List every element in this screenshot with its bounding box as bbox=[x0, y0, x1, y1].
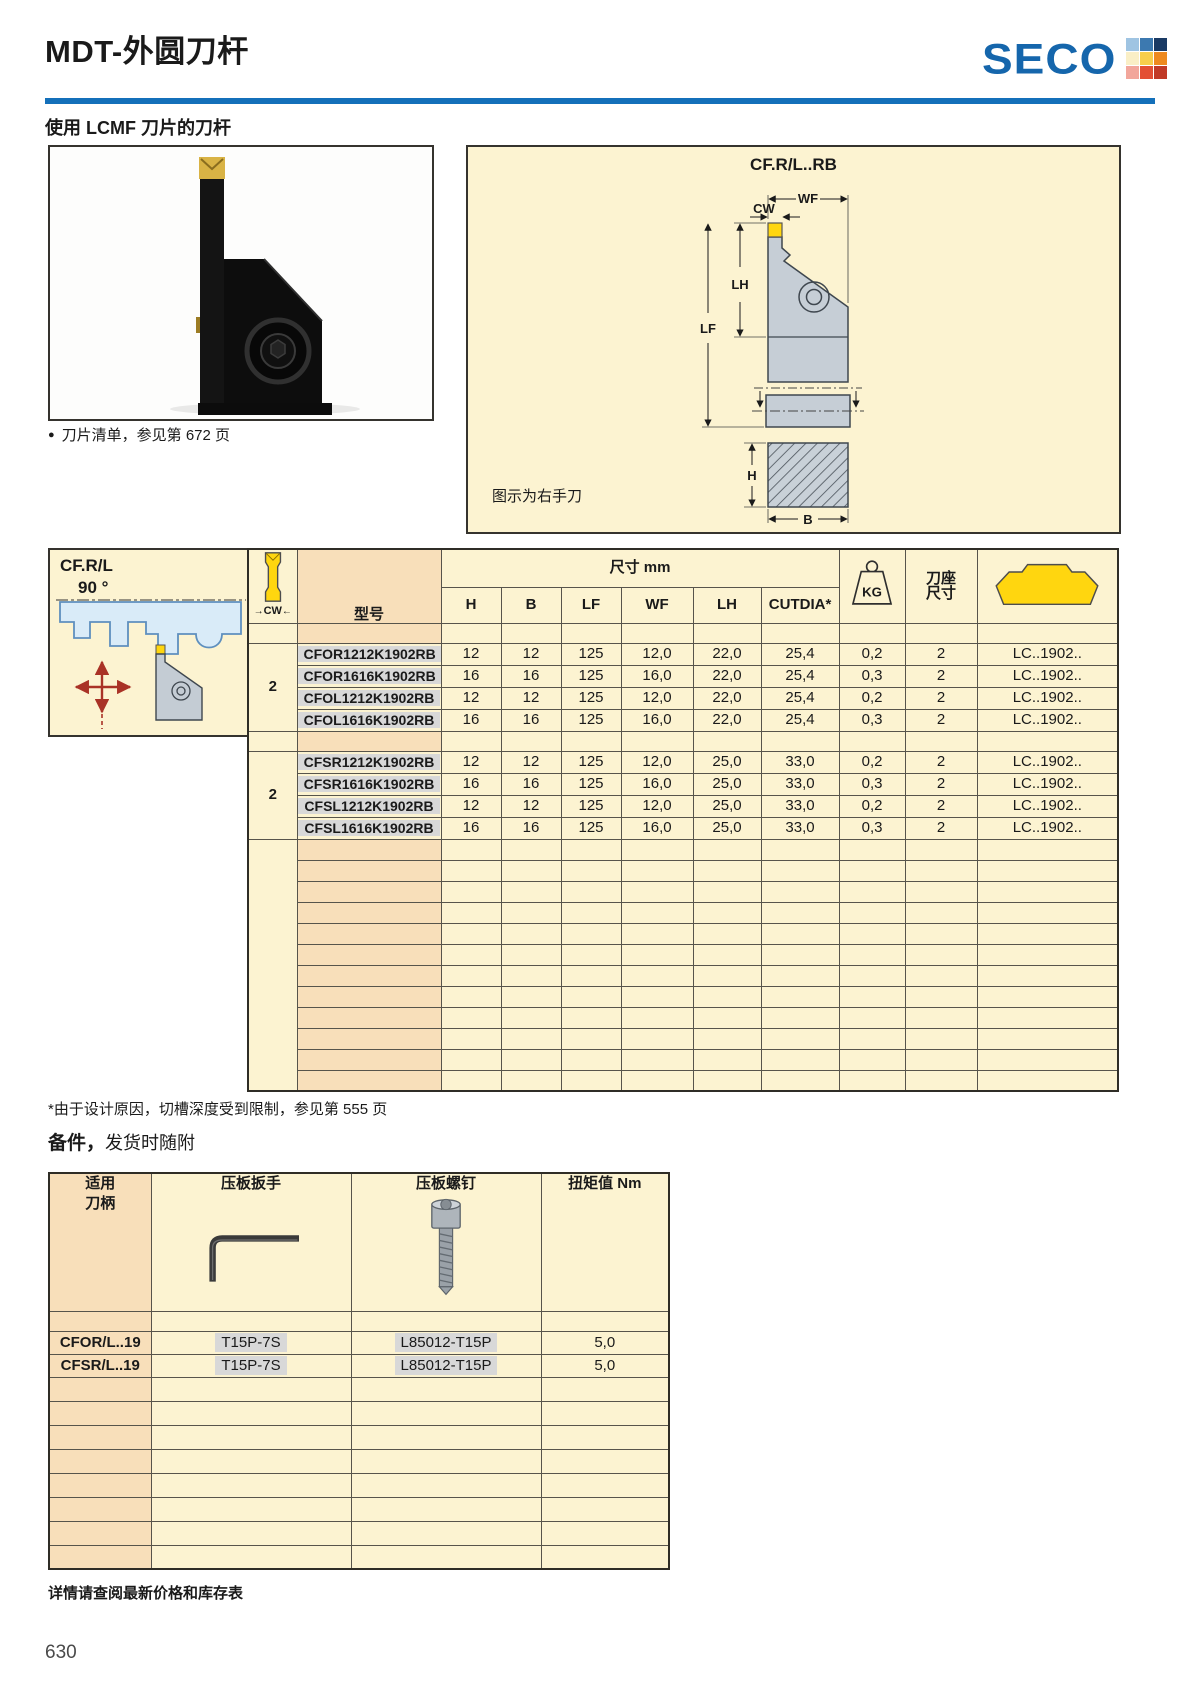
torque-cell: 5,0 bbox=[541, 1354, 669, 1377]
empty-row bbox=[248, 839, 1118, 860]
lf-cell: 125 bbox=[561, 773, 621, 795]
dim-label-lf: LF bbox=[700, 321, 716, 336]
insert-ref-cell: LC..1902.. bbox=[977, 643, 1118, 665]
model-cell: CFOR1212K1902RB bbox=[297, 643, 441, 665]
wf-cell: 12,0 bbox=[621, 643, 693, 665]
cw-header-cell: →CW← bbox=[248, 549, 297, 623]
product-row: 2 CFSR1212K1902RB 12 12 125 12,0 25,0 33… bbox=[248, 751, 1118, 773]
dimensions-group-header: 尺寸 mm bbox=[441, 549, 839, 587]
spacer-row bbox=[248, 623, 1118, 643]
price-stock-note: 详情请查阅最新价格和库存表 bbox=[48, 1582, 243, 1603]
logo-square bbox=[1126, 66, 1139, 79]
lf-cell: 125 bbox=[561, 751, 621, 773]
empty-row bbox=[248, 1028, 1118, 1049]
seat-cell: 2 bbox=[905, 795, 977, 817]
wrench-column-header: 压板扳手 bbox=[151, 1173, 351, 1311]
page-number: 630 bbox=[45, 1642, 77, 1664]
model-cell: CFOL1616K1902RB bbox=[297, 709, 441, 731]
lh-cell: 22,0 bbox=[693, 643, 761, 665]
holder-cell: CFOR/L..19 bbox=[49, 1331, 151, 1354]
main-product-table: →CW← 型号 尺寸 mm KG 刀座 尺寸 bbox=[247, 548, 1119, 1092]
screw-cell: L85012-T15P bbox=[351, 1354, 541, 1377]
page-title: MDT-外圆刀杆 bbox=[45, 26, 249, 71]
workpiece-profile bbox=[60, 602, 241, 654]
model-cell: CFSR1212K1902RB bbox=[297, 751, 441, 773]
torx-wrench-icon bbox=[176, 1216, 326, 1288]
cutdia-cell: 33,0 bbox=[761, 773, 839, 795]
bullet-icon: ● bbox=[48, 429, 55, 441]
seat-cell: 2 bbox=[905, 687, 977, 709]
h-cell: 16 bbox=[441, 709, 501, 731]
logo-square bbox=[1140, 38, 1153, 51]
h-cell: 12 bbox=[441, 643, 501, 665]
accessories-heading: 备件，发货时随附 bbox=[48, 1128, 195, 1155]
b-cell: 12 bbox=[501, 687, 561, 709]
spacer-row bbox=[248, 731, 1118, 751]
col-header-cutdia: CUTDIA* bbox=[761, 587, 839, 623]
cutdia-cell: 25,4 bbox=[761, 643, 839, 665]
accessories-table: 适用 刀柄 压板扳手 压板螺钉 bbox=[48, 1172, 670, 1570]
seat-cell: 2 bbox=[905, 773, 977, 795]
kg-cell: 0,3 bbox=[839, 665, 905, 687]
lf-cell: 125 bbox=[561, 709, 621, 731]
dim-label-cw: CW bbox=[753, 201, 775, 216]
model-cell: CFOR1616K1902RB bbox=[297, 665, 441, 687]
col-header-h: H bbox=[441, 587, 501, 623]
product-row: CFOL1212K1902RB 12 12 125 12,0 22,0 25,4… bbox=[248, 687, 1118, 709]
lf-cell: 125 bbox=[561, 665, 621, 687]
col-header-lf: LF bbox=[561, 587, 621, 623]
b-cell: 12 bbox=[501, 795, 561, 817]
empty-row bbox=[49, 1425, 669, 1449]
hand-orientation-note: 图示为右手刀 bbox=[492, 485, 582, 506]
insert-tip-glyph bbox=[768, 223, 782, 237]
dim-label-b: B bbox=[803, 512, 812, 527]
dim-label-lh: LH bbox=[731, 277, 748, 292]
insert-column-header bbox=[977, 549, 1118, 623]
empty-row bbox=[49, 1449, 669, 1473]
model-cell: CFSL1212K1902RB bbox=[297, 795, 441, 817]
dim-label-h: H bbox=[747, 468, 756, 483]
seat-cell: 2 bbox=[905, 817, 977, 839]
lh-cell: 25,0 bbox=[693, 773, 761, 795]
empty-row bbox=[248, 881, 1118, 902]
h-cell: 12 bbox=[441, 751, 501, 773]
empty-row bbox=[49, 1521, 669, 1545]
b-cell: 16 bbox=[501, 709, 561, 731]
logo-square bbox=[1126, 38, 1139, 51]
dim-arrow-right-icon: → bbox=[254, 607, 264, 617]
cutdia-cell: 33,0 bbox=[761, 795, 839, 817]
kg-cell: 0,3 bbox=[839, 709, 905, 731]
empty-cell bbox=[248, 839, 297, 1091]
empty-row bbox=[248, 965, 1118, 986]
product-row: CFSL1616K1902RB 16 16 125 16,0 25,0 33,0… bbox=[248, 817, 1118, 839]
logo-square bbox=[1126, 52, 1139, 65]
col-header-b: B bbox=[501, 587, 561, 623]
model-cell: CFOL1212K1902RB bbox=[297, 687, 441, 709]
cutdia-cell: 25,4 bbox=[761, 687, 839, 709]
weight-column-header: KG bbox=[839, 549, 905, 623]
insert-ref-cell: LC..1902.. bbox=[977, 773, 1118, 795]
seat-cell: 2 bbox=[905, 643, 977, 665]
application-code: CF.R/L bbox=[60, 556, 113, 576]
logo-square bbox=[1154, 66, 1167, 79]
empty-row bbox=[49, 1401, 669, 1425]
product-row: 2 CFOR1212K1902RB 12 12 125 12,0 22,0 25… bbox=[248, 643, 1118, 665]
accessory-row: CFOR/L..19 T15P-7S L85012-T15P 5,0 bbox=[49, 1331, 669, 1354]
b-cell: 16 bbox=[501, 773, 561, 795]
seat-cell: 2 bbox=[905, 751, 977, 773]
torque-column-header: 扭矩值 Nm bbox=[541, 1173, 669, 1311]
wf-cell: 16,0 bbox=[621, 709, 693, 731]
holder-column-header: 适用 刀柄 bbox=[49, 1173, 151, 1311]
lh-cell: 25,0 bbox=[693, 795, 761, 817]
wf-cell: 12,0 bbox=[621, 795, 693, 817]
b-cell: 16 bbox=[501, 665, 561, 687]
application-panel: CF.R/L 90 ° bbox=[48, 548, 257, 737]
clamp-screw-icon bbox=[423, 1196, 469, 1300]
empty-cell bbox=[248, 623, 297, 643]
empty-row bbox=[248, 1070, 1118, 1091]
product-row: CFOR1616K1902RB 16 16 125 16,0 22,0 25,4… bbox=[248, 665, 1118, 687]
svg-text:KG: KG bbox=[862, 585, 882, 600]
insert-ref-cell: LC..1902.. bbox=[977, 687, 1118, 709]
h-cell: 16 bbox=[441, 773, 501, 795]
empty-row bbox=[49, 1545, 669, 1569]
torque-cell: 5,0 bbox=[541, 1331, 669, 1354]
shank-cross-section bbox=[768, 443, 848, 507]
empty-row bbox=[248, 860, 1118, 881]
model-cell: CFSR1616K1902RB bbox=[297, 773, 441, 795]
kg-cell: 0,2 bbox=[839, 643, 905, 665]
cutdia-cell: 33,0 bbox=[761, 751, 839, 773]
empty-cell bbox=[297, 623, 441, 643]
wf-cell: 12,0 bbox=[621, 687, 693, 709]
empty-row bbox=[248, 1007, 1118, 1028]
tool-photo bbox=[50, 147, 428, 415]
b-cell: 12 bbox=[501, 751, 561, 773]
logo-square bbox=[1140, 66, 1153, 79]
application-angle: 90 ° bbox=[78, 578, 108, 598]
empty-row bbox=[49, 1497, 669, 1521]
logo-square bbox=[1154, 52, 1167, 65]
seat-cell: 2 bbox=[905, 709, 977, 731]
dim-arrow-left-icon: ← bbox=[282, 607, 292, 617]
dim-label-wf: WF bbox=[798, 191, 818, 206]
holder-cell: CFSR/L..19 bbox=[49, 1354, 151, 1377]
seat-size-column-header: 刀座 尺寸 bbox=[905, 549, 977, 623]
logo-square bbox=[1154, 38, 1167, 51]
kg-cell: 0,3 bbox=[839, 817, 905, 839]
insert-tip-glyph bbox=[156, 645, 165, 654]
logo-square bbox=[1140, 52, 1153, 65]
insert-ref-cell: LC..1902.. bbox=[977, 665, 1118, 687]
seco-logo: SECO bbox=[982, 36, 1167, 82]
insert-front-icon bbox=[258, 550, 288, 604]
insert-ref-cell: LC..1902.. bbox=[977, 817, 1118, 839]
empty-row bbox=[49, 1377, 669, 1401]
h-cell: 16 bbox=[441, 817, 501, 839]
product-row: CFSL1212K1902RB 12 12 125 12,0 25,0 33,0… bbox=[248, 795, 1118, 817]
kg-cell: 0,3 bbox=[839, 773, 905, 795]
cw-value-cell: 2 bbox=[248, 643, 297, 731]
wf-cell: 16,0 bbox=[621, 817, 693, 839]
empty-row bbox=[248, 923, 1118, 944]
product-row: CFSR1616K1902RB 16 16 125 16,0 25,0 33,0… bbox=[248, 773, 1118, 795]
dimension-diagram-panel: CF.R/L..RB bbox=[466, 145, 1121, 534]
design-footnote: *由于设计原因，切槽深度受到限制，参见第 555 页 bbox=[48, 1098, 387, 1119]
cw-value-cell: 2 bbox=[248, 751, 297, 839]
cw-dim-label: CW bbox=[264, 606, 282, 618]
wf-cell: 12,0 bbox=[621, 751, 693, 773]
h-cell: 12 bbox=[441, 687, 501, 709]
insert-profile-icon bbox=[987, 559, 1107, 609]
h-cell: 12 bbox=[441, 795, 501, 817]
seat-cell: 2 bbox=[905, 665, 977, 687]
lf-cell: 125 bbox=[561, 687, 621, 709]
wrench-cell: T15P-7S bbox=[151, 1354, 351, 1377]
empty-row bbox=[248, 986, 1118, 1007]
lh-cell: 22,0 bbox=[693, 687, 761, 709]
wrench-cell: T15P-7S bbox=[151, 1331, 351, 1354]
catalog-page: MDT-外圆刀杆 SECO 使用 LCMF 刀片的刀杆 ●刀片清单，参见第 67… bbox=[0, 0, 1200, 1697]
insert-ref-cell: LC..1902.. bbox=[977, 795, 1118, 817]
empty-row bbox=[248, 1049, 1118, 1070]
b-cell: 12 bbox=[501, 643, 561, 665]
b-cell: 16 bbox=[501, 817, 561, 839]
col-header-wf: WF bbox=[621, 587, 693, 623]
product-photo-frame bbox=[48, 145, 434, 421]
model-cell: CFSL1616K1902RB bbox=[297, 817, 441, 839]
lf-cell: 125 bbox=[561, 643, 621, 665]
cutdia-cell: 25,4 bbox=[761, 709, 839, 731]
cutdia-cell: 33,0 bbox=[761, 817, 839, 839]
insert-ref-cell: LC..1902.. bbox=[977, 709, 1118, 731]
empty-row bbox=[248, 944, 1118, 965]
seco-logo-grid-icon bbox=[1126, 38, 1167, 79]
screw-column-header: 压板螺钉 bbox=[351, 1173, 541, 1311]
lh-cell: 22,0 bbox=[693, 665, 761, 687]
col-header-lh: LH bbox=[693, 587, 761, 623]
kg-cell: 0,2 bbox=[839, 751, 905, 773]
empty-row bbox=[248, 902, 1118, 923]
insert-ref-cell: LC..1902.. bbox=[977, 751, 1118, 773]
h-cell: 16 bbox=[441, 665, 501, 687]
product-row: CFOL1616K1902RB 16 16 125 16,0 22,0 25,4… bbox=[248, 709, 1118, 731]
accessory-row: CFSR/L..19 T15P-7S L85012-T15P 5,0 bbox=[49, 1354, 669, 1377]
kg-weight-icon: KG bbox=[843, 556, 901, 612]
screw-cell: L85012-T15P bbox=[351, 1331, 541, 1354]
kg-cell: 0,2 bbox=[839, 687, 905, 709]
seco-logo-text: SECO bbox=[982, 38, 1116, 80]
wf-cell: 16,0 bbox=[621, 773, 693, 795]
lh-cell: 22,0 bbox=[693, 709, 761, 731]
technical-drawing: WF CW LH LF H B bbox=[468, 147, 1115, 528]
model-column-header: 型号 bbox=[297, 549, 441, 623]
wf-cell: 16,0 bbox=[621, 665, 693, 687]
cutdia-cell: 25,4 bbox=[761, 665, 839, 687]
insert-list-note: ●刀片清单，参见第 672 页 bbox=[48, 424, 230, 445]
kg-cell: 0,2 bbox=[839, 795, 905, 817]
section-subtitle: 使用 LCMF 刀片的刀杆 bbox=[45, 114, 231, 140]
spacer-row bbox=[49, 1311, 669, 1331]
empty-row bbox=[49, 1473, 669, 1497]
lf-cell: 125 bbox=[561, 795, 621, 817]
lh-cell: 25,0 bbox=[693, 751, 761, 773]
lf-cell: 125 bbox=[561, 817, 621, 839]
header-divider bbox=[45, 98, 1155, 104]
lh-cell: 25,0 bbox=[693, 817, 761, 839]
